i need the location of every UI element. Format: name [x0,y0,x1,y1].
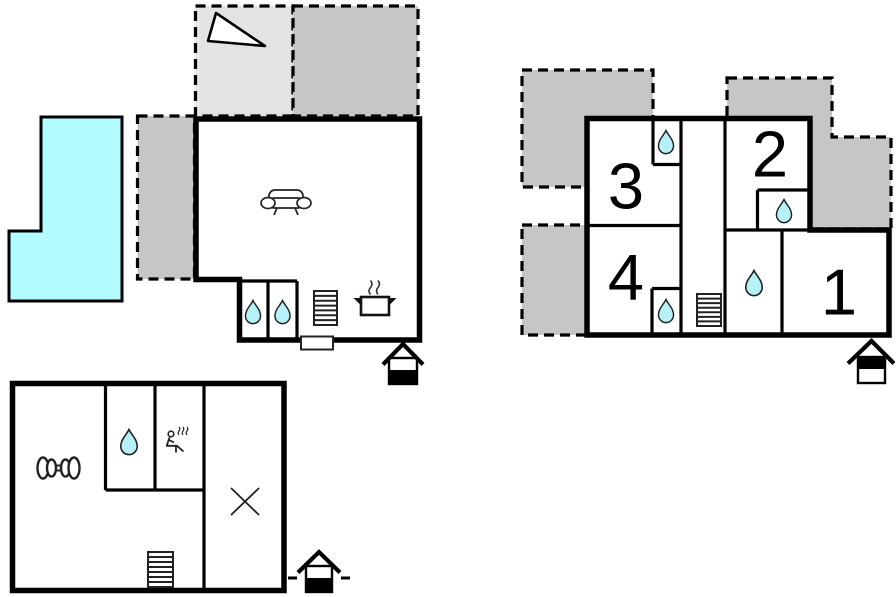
entrance-icon [848,341,894,383]
basement-plan [13,384,351,593]
entrance-icon [383,344,423,384]
room-label-1: 1 [821,256,857,329]
stairs-icon [697,294,721,326]
stairs-icon [148,552,173,587]
room-label-2: 2 [752,118,788,191]
floor-plan-image: 3 2 4 1 [0,0,896,597]
room-label-4: 4 [608,241,644,314]
swimming-pool [9,117,122,301]
terrace-light [196,6,294,116]
terrace-dark-top [293,6,418,116]
ground-floor-plan [9,6,423,384]
floor-plan-page: 3 2 4 1 [0,0,896,597]
upper-floor-plan: 3 2 4 1 [522,70,894,383]
terrace-dark-side [138,116,195,279]
room-label-3: 3 [608,150,644,223]
stairs-icon [314,291,337,325]
entrance-icon [288,552,350,592]
terrace-dark-lower-left [522,225,587,335]
window [301,337,333,350]
